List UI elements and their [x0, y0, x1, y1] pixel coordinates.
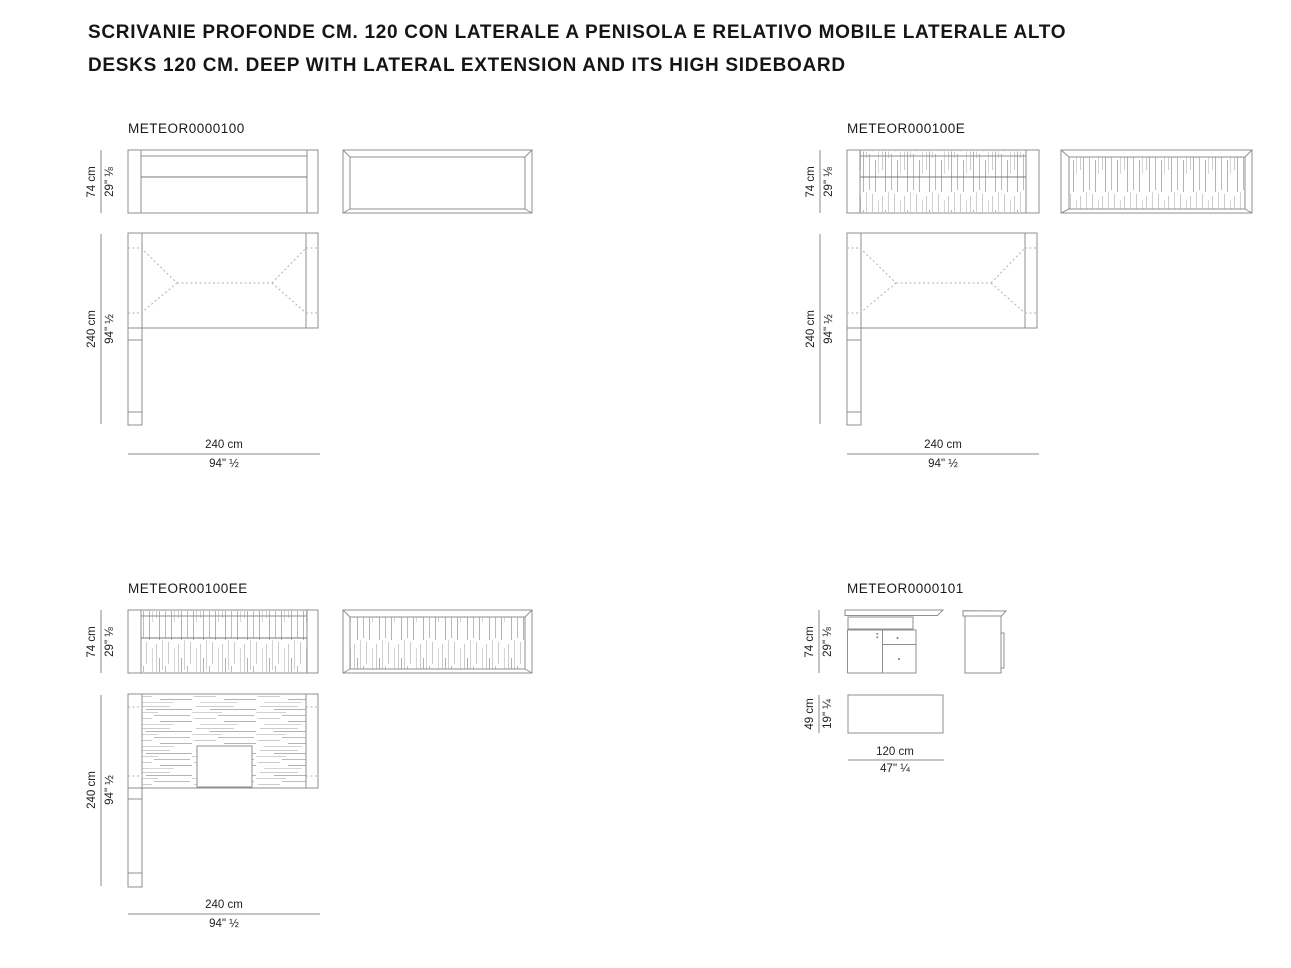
d4-width-in-label: 47" ¼ [880, 763, 910, 775]
d4-depth-cm-label: 49 cm [804, 698, 816, 729]
technical-line-art [0, 0, 1291, 968]
meteor000100e-front-view [847, 150, 1039, 213]
d2-depth-cm-label: 240 cm [805, 310, 817, 348]
d2-depth-in-label: 94" ½ [823, 314, 835, 344]
d1-depth-cm-label: 240 cm [86, 310, 98, 348]
d1-width-cm-label: 240 cm [205, 439, 243, 451]
meteor00100ee-front-view [128, 610, 318, 673]
d3-height-in-label: 29" ⅛ [104, 627, 116, 657]
d4-width-cm-label: 120 cm [876, 746, 914, 758]
d1-width-in-label: 94" ½ [209, 458, 239, 470]
d4-height-cm-label: 74 cm [804, 626, 816, 657]
d3-height-cm-label: 74 cm [86, 626, 98, 657]
d3-width-in-label: 94" ½ [209, 918, 239, 930]
meteor0000100-drawing [101, 150, 532, 454]
meteor0000100-dimension-lines [101, 150, 320, 454]
d1-height-in-label: 29" ⅛ [104, 167, 116, 197]
meteor000100e-plan-view [847, 233, 1037, 425]
meteor00100ee-drawing [101, 610, 532, 914]
meteor0000100-back-view [343, 150, 532, 213]
d2-height-cm-label: 74 cm [805, 166, 817, 197]
meteor000100e-drawing [820, 150, 1252, 454]
d1-depth-in-label: 94" ½ [104, 314, 116, 344]
d3-depth-cm-label: 240 cm [86, 771, 98, 809]
d3-width-cm-label: 240 cm [205, 899, 243, 911]
d4-depth-in-label: 19" ¼ [822, 699, 834, 729]
meteor0000101-front-view [845, 610, 943, 673]
meteor0000101-side-view [963, 611, 1006, 673]
catalog-page: SCRIVANIE PROFONDE CM. 120 CON LATERALE … [0, 0, 1291, 968]
d3-depth-in-label: 94" ½ [104, 775, 116, 805]
meteor0000100-plan-view [128, 233, 318, 425]
meteor0000100-front-view [128, 150, 318, 213]
meteor0000101-dimension-lines [819, 610, 944, 760]
meteor000100e-back-view [1061, 150, 1252, 213]
d2-height-in-label: 29" ⅛ [823, 167, 835, 197]
meteor00100ee-plan-view [128, 694, 318, 887]
meteor00100ee-back-view [343, 610, 532, 673]
d4-height-in-label: 29" ⅛ [822, 627, 834, 657]
meteor0000101-plan-view [848, 695, 943, 733]
d2-width-in-label: 94" ½ [928, 458, 958, 470]
d2-width-cm-label: 240 cm [924, 439, 962, 451]
d1-height-cm-label: 74 cm [86, 166, 98, 197]
meteor0000101-drawing [819, 610, 1006, 760]
